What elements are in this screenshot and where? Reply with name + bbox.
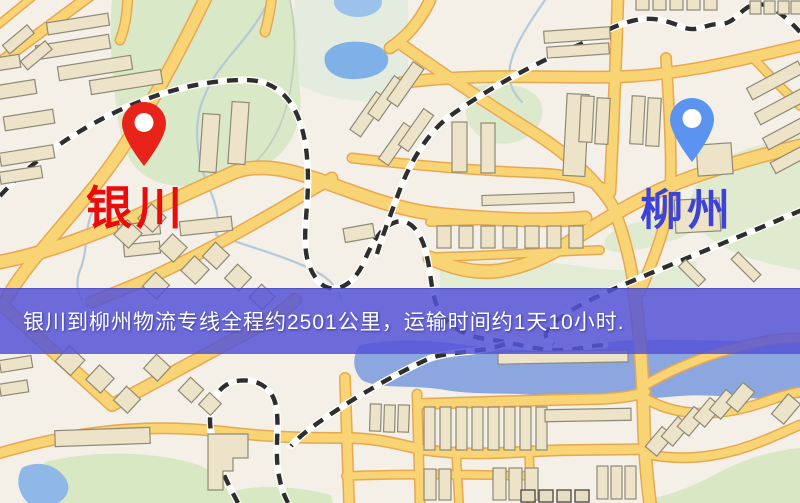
route-info-text: 银川到柳州物流专线全程约2501公里，运输时间约1天10小时.: [0, 306, 625, 336]
origin-city-label: 银川: [86, 172, 186, 238]
route-info-banner: 银川到柳州物流专线全程约2501公里，运输时间约1天10小时.: [0, 288, 800, 354]
map-canvas[interactable]: [0, 0, 800, 503]
destination-city-label: 柳州: [640, 176, 734, 238]
map-screenshot: 银川到柳州物流专线全程约2501公里，运输时间约1天10小时. 银川 柳州: [0, 0, 800, 503]
origin-pin-icon[interactable]: [121, 101, 167, 167]
destination-pin-icon[interactable]: [669, 97, 715, 163]
